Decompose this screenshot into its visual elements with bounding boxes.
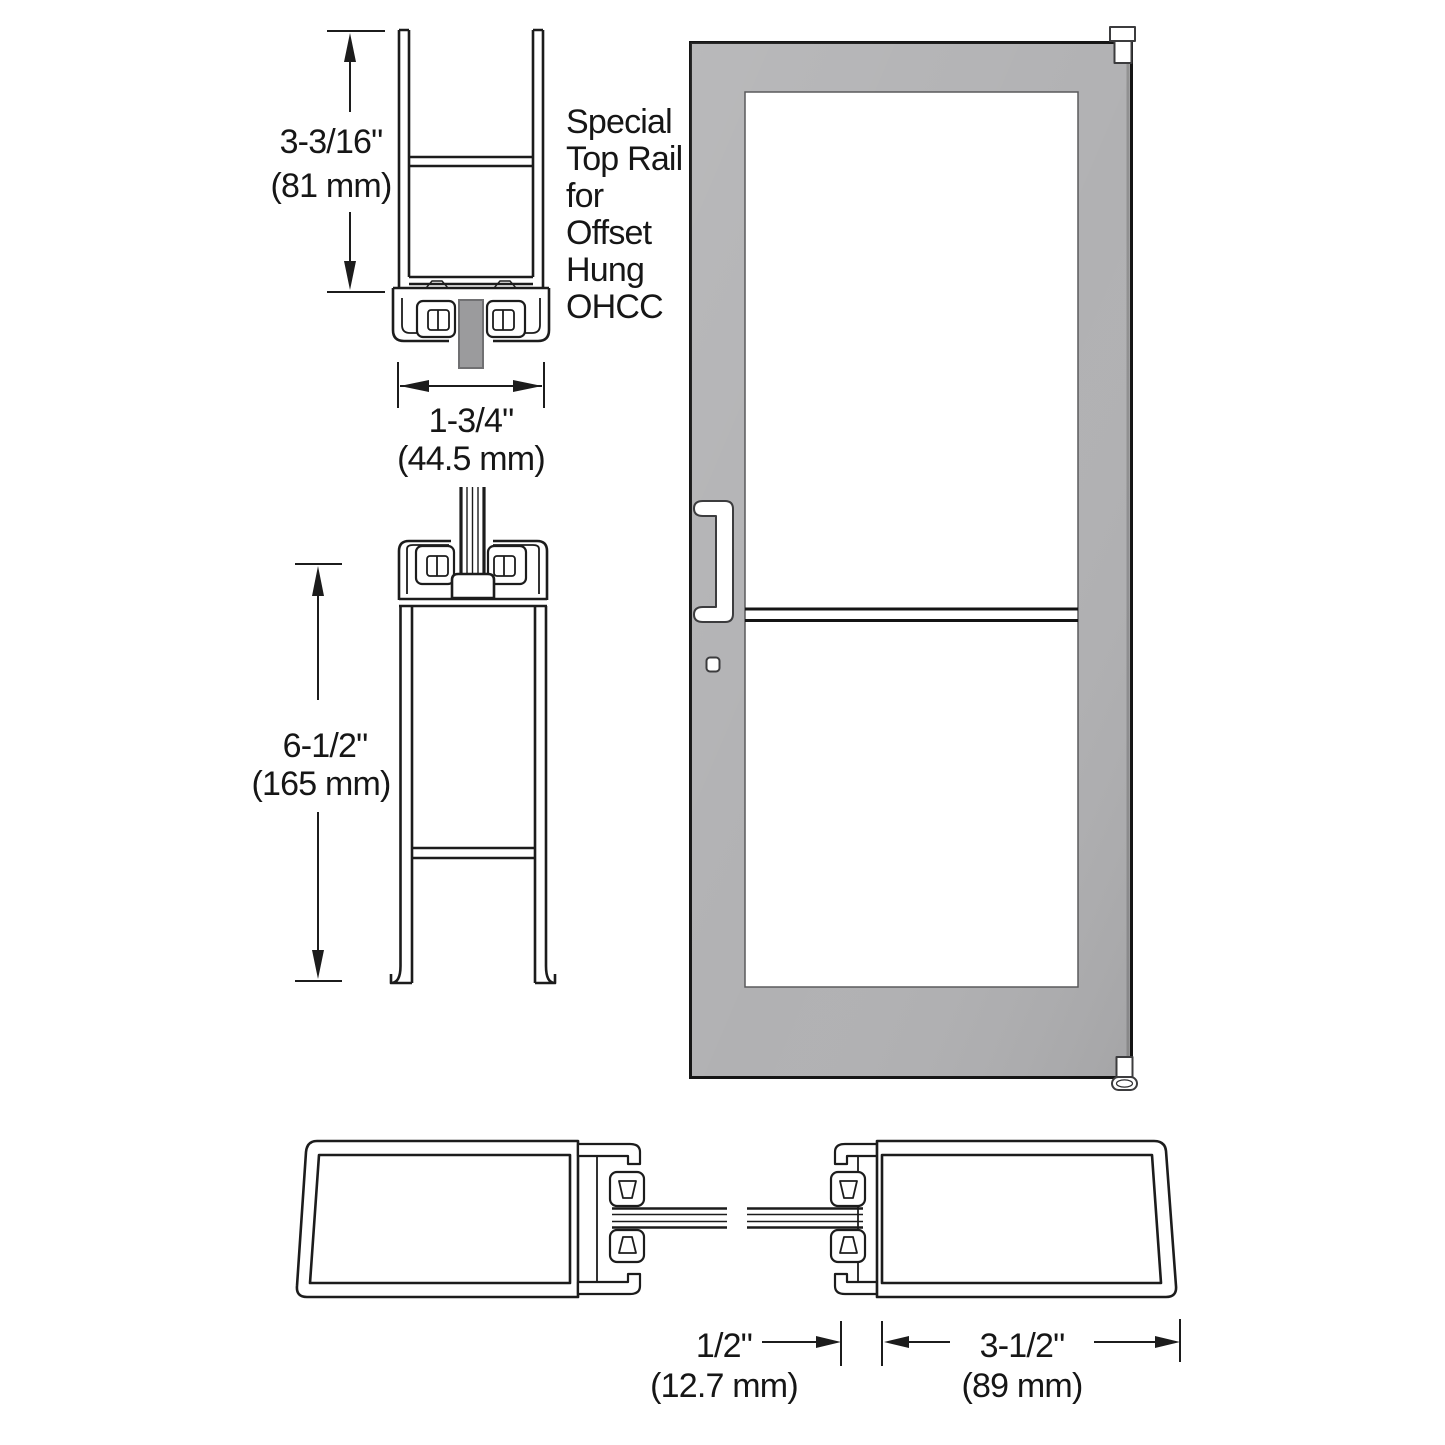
note-line-1: Special — [566, 103, 672, 141]
bottom-rail-feet — [391, 966, 555, 983]
door-glass — [745, 92, 1078, 987]
note-line-2: Top Rail — [566, 140, 682, 178]
bottom-rail-walls — [401, 606, 547, 983]
bottom-clamp-left — [416, 546, 454, 584]
glass-stub-lines — [461, 487, 484, 580]
dimension-top-rail-height: 3-3/16" (81 mm) — [271, 31, 392, 292]
lock-cylinder — [707, 658, 720, 672]
bottom-rail-height-inches: 6-1/2" — [283, 727, 368, 765]
right-lower-gasket — [831, 1230, 865, 1262]
right-channel-top-arm — [835, 1144, 877, 1164]
glass-stop-inches: 1/2" — [696, 1327, 752, 1365]
bottom-pivot — [1112, 1057, 1137, 1090]
dimension-glass-stop: 1/2" (12.7 mm) — [650, 1321, 841, 1405]
left-stile-outer — [297, 1141, 578, 1297]
glass-segment-right — [747, 1208, 863, 1228]
note-line-3: for — [566, 177, 604, 215]
note-line-5: Hung — [566, 251, 644, 289]
glazing-clamp-left — [417, 301, 455, 337]
left-lower-gasket — [610, 1230, 644, 1262]
glass-stub — [459, 300, 483, 368]
left-channel-bottom-arm — [578, 1274, 640, 1294]
stile-section: 1/2" (12.7 mm) 3-1/2" (89 mm) — [297, 1141, 1180, 1405]
bottom-rail-webs — [399, 599, 547, 606]
special-top-rail-note: Special Top Rail for Offset Hung OHCC — [566, 103, 682, 326]
top-rail-width-metric: (44.5 mm) — [397, 440, 545, 478]
top-rail-height-metric: (81 mm) — [271, 167, 392, 205]
setting-block — [452, 574, 494, 598]
diagram-canvas: 3-3/16" (81 mm) 1-3/4" (44.5 mm) Special… — [0, 0, 1445, 1445]
top-pivot — [1110, 27, 1135, 63]
glass-stop-metric: (12.7 mm) — [650, 1367, 798, 1405]
top-rail-profile-walls — [399, 30, 543, 288]
dimension-top-rail-width: 1-3/4" (44.5 mm) — [397, 362, 545, 478]
top-rail-height-inches: 3-3/16" — [280, 123, 383, 161]
bottom-rail-height-metric: (165 mm) — [251, 765, 390, 803]
door-elevation — [691, 27, 1138, 1090]
note-line-4: Offset — [566, 214, 653, 252]
glazing-clamp-right — [487, 301, 525, 337]
right-channel-bottom-arm — [835, 1274, 877, 1294]
left-upper-gasket — [610, 1172, 644, 1206]
right-stile-outer — [877, 1141, 1176, 1297]
top-rail-width-inches: 1-3/4" — [429, 402, 514, 440]
glass-segment-left — [612, 1208, 727, 1228]
note-line-6: OHCC — [566, 288, 663, 326]
left-channel-top-arm — [578, 1144, 640, 1164]
top-rail-section: 3-3/16" (81 mm) 1-3/4" (44.5 mm) Special… — [271, 30, 683, 478]
stile-width-metric: (89 mm) — [962, 1367, 1083, 1405]
dimension-bottom-rail-height: 6-1/2" (165 mm) — [251, 564, 390, 981]
stile-width-inches: 3-1/2" — [980, 1327, 1065, 1365]
right-upper-gasket — [831, 1172, 865, 1206]
dimension-stile-width: 3-1/2" (89 mm) — [882, 1319, 1180, 1405]
top-rail-webs — [409, 157, 533, 284]
door-dimension-drawing: 3-3/16" (81 mm) 1-3/4" (44.5 mm) Special… — [0, 0, 1445, 1445]
bottom-rail-section: 6-1/2" (165 mm) — [251, 487, 555, 983]
